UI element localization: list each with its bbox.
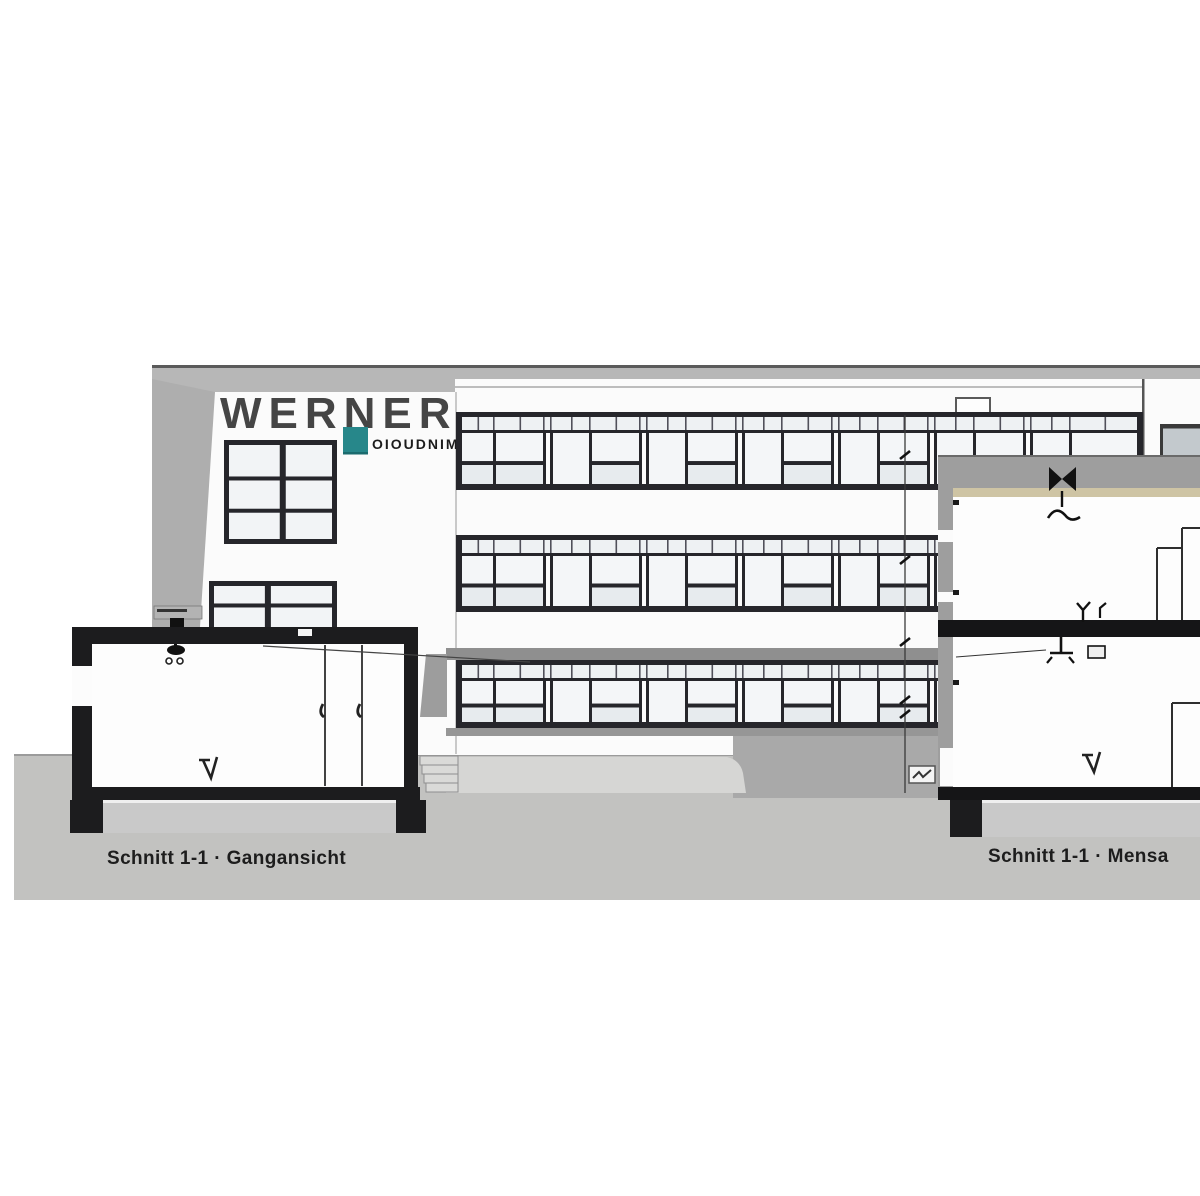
- mid-floor-slab: [938, 620, 1200, 637]
- logo-square: [343, 427, 368, 454]
- right-cut-wall: [404, 627, 418, 790]
- annex-window: [1160, 424, 1200, 457]
- foundation-foot: [70, 800, 103, 833]
- caption-left: Schnitt 1-1 · Gangansicht: [107, 848, 346, 869]
- elevation-section-drawing: WERNER OIOUDNIMA: [0, 0, 1200, 1196]
- right-section-box: [938, 455, 1200, 837]
- plinth: [103, 803, 401, 833]
- parapet-top-line: [152, 365, 1200, 368]
- entrance-steps: [420, 756, 458, 792]
- bottom-slab: [938, 787, 1200, 800]
- left-cut-wall: [72, 627, 92, 803]
- foundation-foot: [950, 800, 982, 837]
- floor-slab: [86, 787, 420, 800]
- lower-room: [953, 637, 1200, 787]
- company-sign-text: WERNER: [220, 389, 458, 438]
- architectural-drawing: WERNER OIOUDNIMA: [0, 0, 1200, 1196]
- annex-wing: [1160, 424, 1200, 457]
- room-interior: [92, 644, 404, 787]
- roof-beam: [72, 627, 418, 644]
- upper-room: [953, 497, 1200, 620]
- suspended-ceiling: [953, 488, 1200, 497]
- wall-sign: [154, 606, 202, 619]
- plaza-light-area: [446, 757, 746, 793]
- plinth: [973, 803, 1200, 837]
- caption-right: Schnitt 1-1 · Mensa: [988, 846, 1169, 867]
- foundation-foot: [396, 800, 426, 833]
